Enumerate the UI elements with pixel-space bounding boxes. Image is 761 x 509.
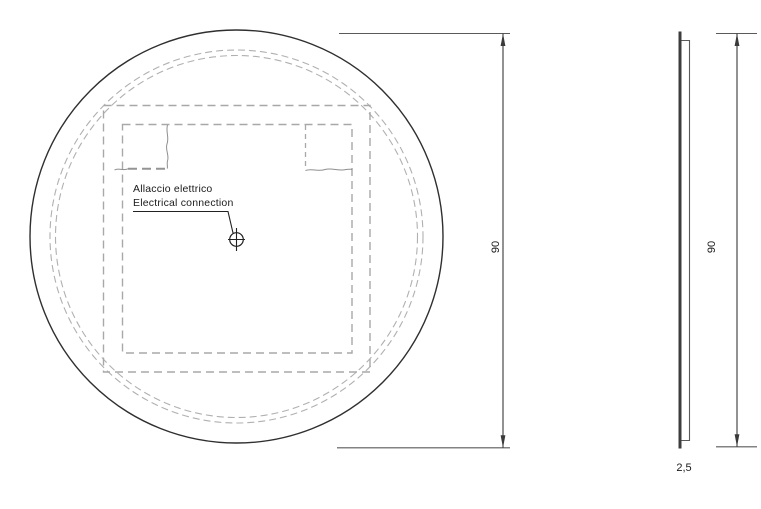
side-height-dimension <box>716 34 757 447</box>
arrowhead-down <box>735 434 740 447</box>
front-height-dimension-label: 90 <box>489 229 503 265</box>
break-line-tail-left <box>115 169 129 170</box>
side-view <box>680 32 690 449</box>
side-thickness-dimension-label: 2,5 <box>668 461 700 475</box>
electrical-connection-mark <box>228 228 245 251</box>
arrowhead-down <box>501 435 506 448</box>
break-line-horizontal-right <box>306 169 353 171</box>
back-frame-inner-dashed <box>123 125 353 354</box>
back-panel-profile <box>682 41 690 441</box>
callout-text-italian: Allaccio elettrico <box>133 183 234 197</box>
callout-text-english: Electrical connection <box>133 197 234 211</box>
electrical-connection-callout: Allaccio elettrico Electrical connection <box>133 183 234 210</box>
side-height-dimension-label: 90 <box>705 229 719 265</box>
arrowhead-up <box>501 34 506 47</box>
arrowhead-up <box>735 34 740 47</box>
mounting-cutout-right <box>306 125 353 171</box>
front-view <box>30 30 443 443</box>
callout-leader-line <box>133 212 233 234</box>
technical-drawing <box>0 0 761 509</box>
drawing-canvas: Allaccio elettrico Electrical connection… <box>0 0 761 509</box>
break-line-vertical-left <box>166 125 168 169</box>
